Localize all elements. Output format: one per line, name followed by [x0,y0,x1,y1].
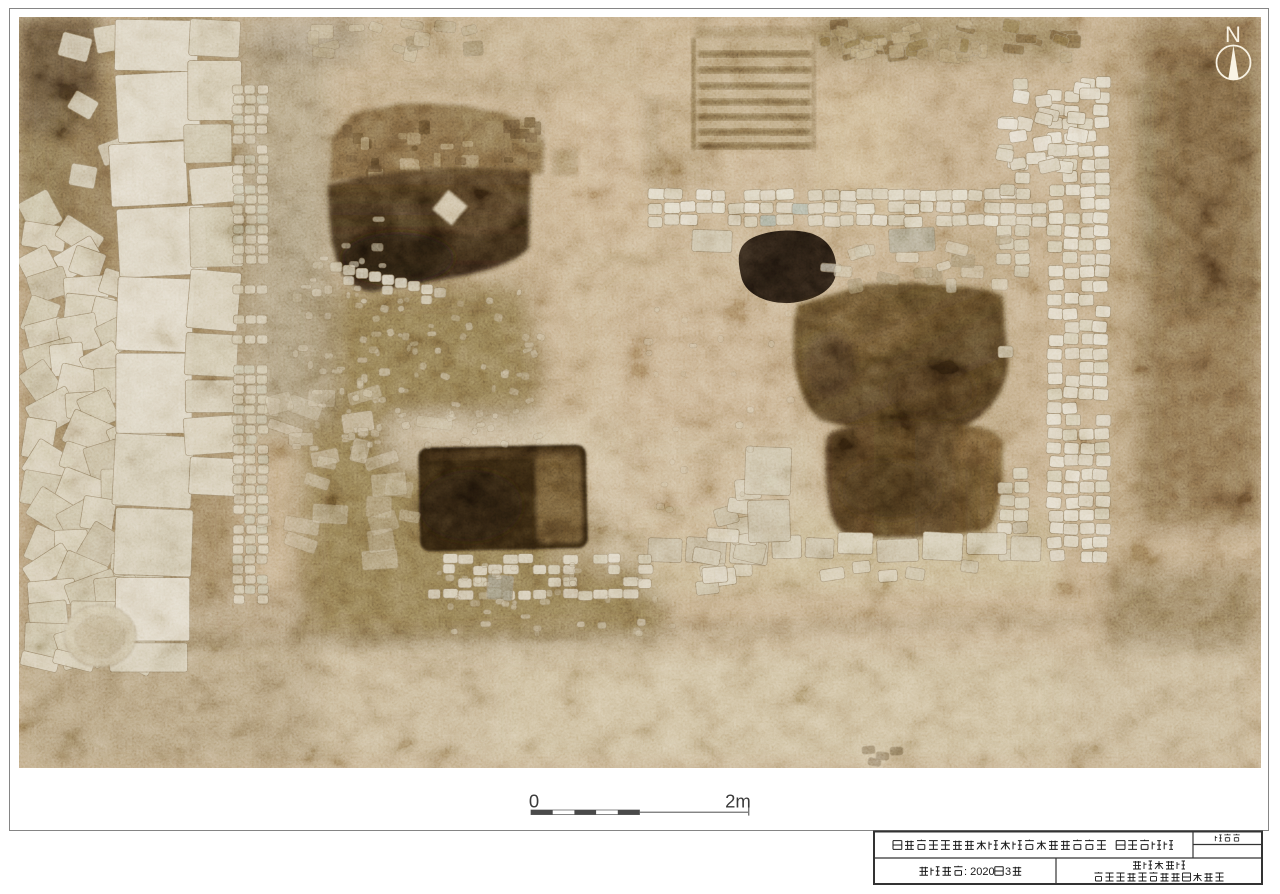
svg-text:: 2020: : 2020 [964,866,995,878]
svg-text:0: 0 [529,791,539,812]
svg-text:3: 3 [1005,866,1011,878]
svg-text:2m: 2m [725,791,751,812]
